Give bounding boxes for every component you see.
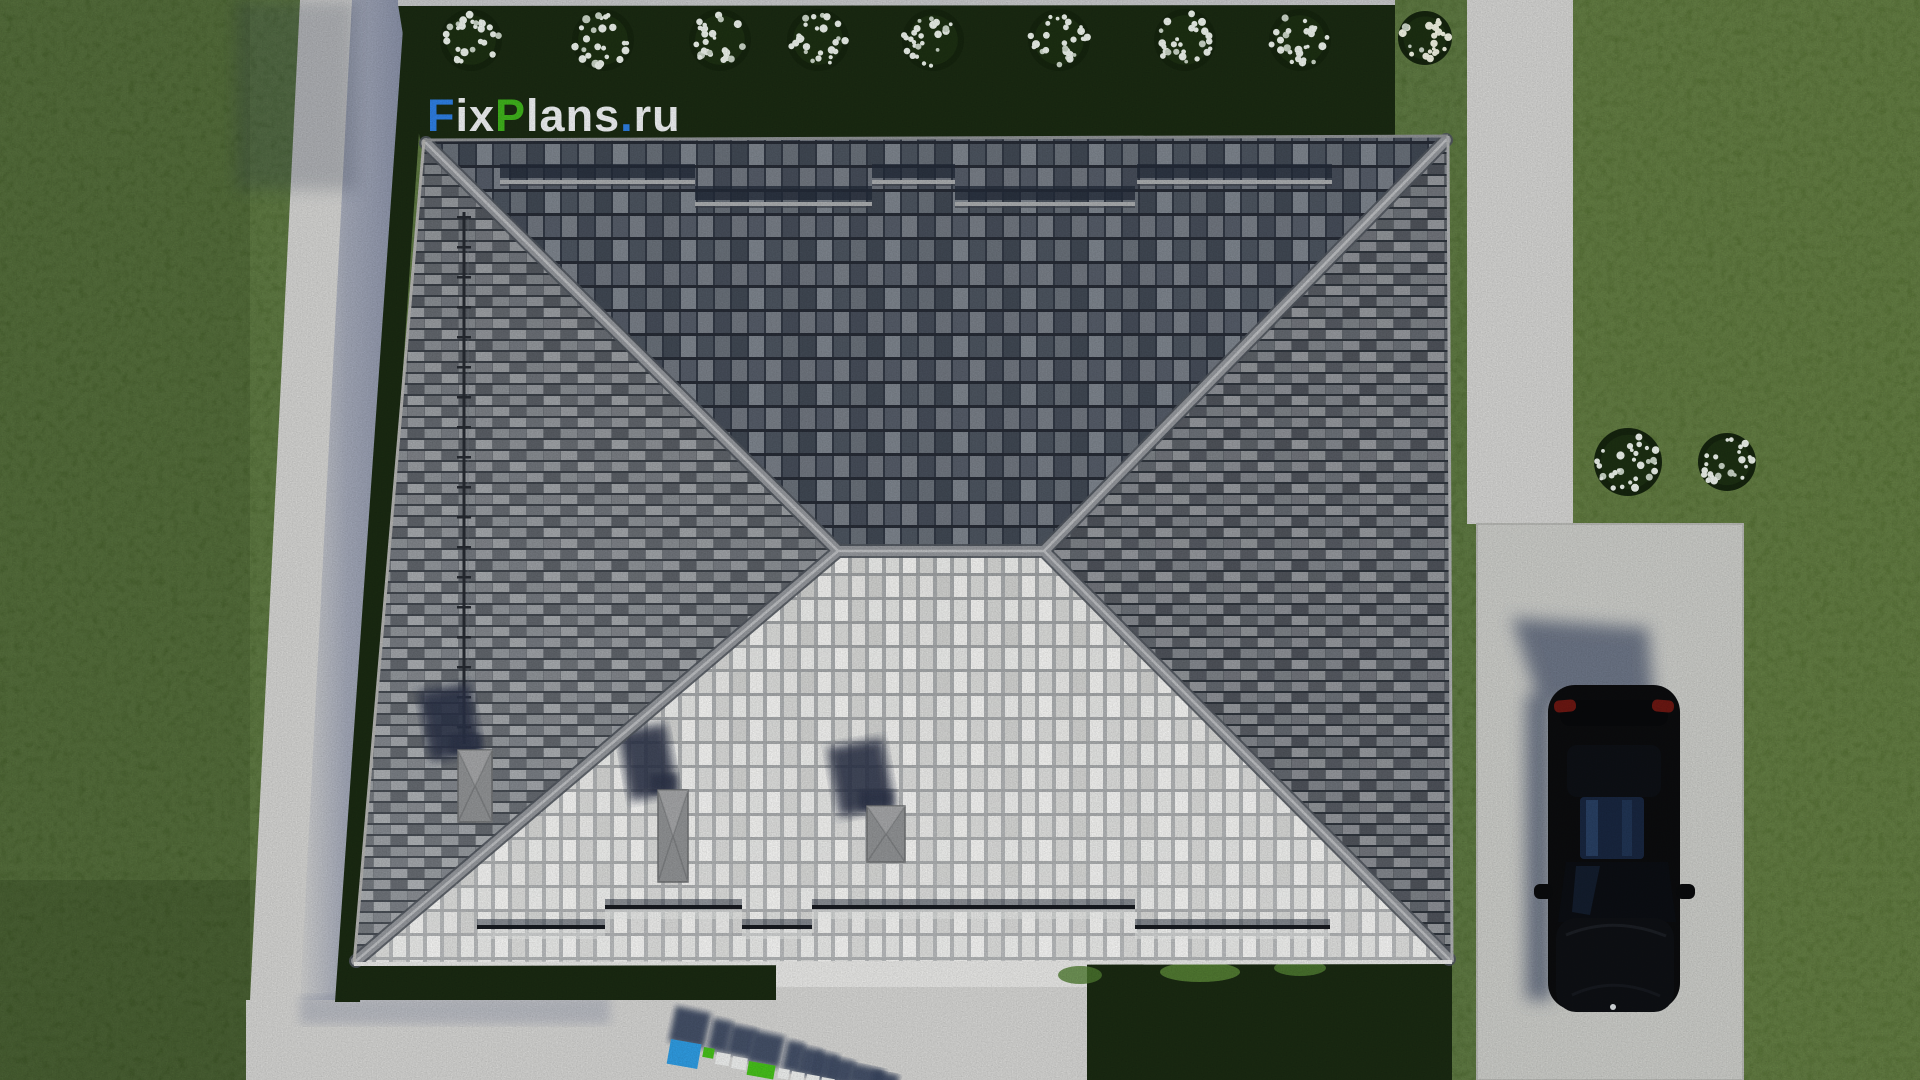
film-grain-overlay [0, 0, 1920, 1080]
aerial-house-render: FixPlans.ru [0, 0, 1920, 1080]
scene-svg: FixPlans.ru [0, 0, 1920, 1080]
